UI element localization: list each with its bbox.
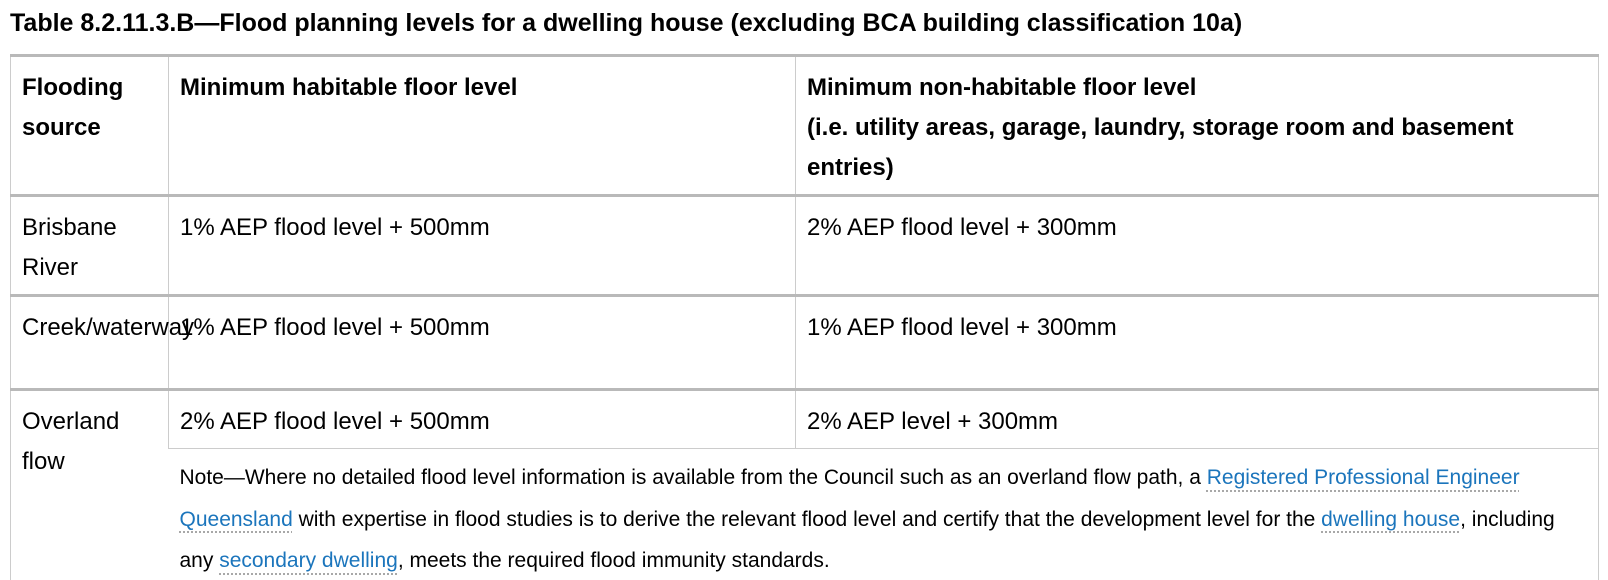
table-row-overland-flow: Overland flow 2% AEP flood level + 500mm… — [11, 390, 1599, 449]
cell-source-overland-flow: Overland flow — [11, 390, 169, 580]
header-flooding-source: Flooding source — [11, 56, 169, 196]
cell-non-habitable-creek-waterway: 1% AEP flood level + 300mm — [796, 296, 1599, 390]
cell-habitable-brisbane-river: 1% AEP flood level + 500mm — [169, 196, 796, 296]
link-registered-professional-engineer-queensland[interactable]: Registered Professional Engineer Queensl… — [180, 466, 1520, 531]
table-header-row: Flooding source Minimum habitable floor … — [11, 56, 1599, 196]
link-secondary-dwelling[interactable]: secondary dwelling — [219, 549, 398, 572]
note-text: Note—Where no detailed flood level infor… — [180, 466, 1555, 572]
document-page: Table 8.2.11.3.B—Flood planning levels f… — [0, 0, 1608, 580]
table-row-creek-waterway: Creek/waterway 1% AEP flood level + 500m… — [11, 296, 1599, 390]
table-row-overland-flow-note: Note—Where no detailed flood level infor… — [11, 449, 1599, 580]
cell-non-habitable-overland-flow: 2% AEP level + 300mm — [796, 390, 1599, 449]
table-row-brisbane-river: Brisbane River 1% AEP flood level + 500m… — [11, 196, 1599, 296]
header-min-non-habitable-floor-level: Minimum non-habitable floor level (i.e. … — [796, 56, 1599, 196]
note-cell: Note—Where no detailed flood level infor… — [169, 449, 1599, 580]
flood-planning-levels-table: Flooding source Minimum habitable floor … — [10, 54, 1599, 580]
cell-source-creek-waterway: Creek/waterway — [11, 296, 169, 390]
header-min-habitable-floor-level: Minimum habitable floor level — [169, 56, 796, 196]
cell-habitable-creek-waterway: 1% AEP flood level + 500mm — [169, 296, 796, 390]
table-title: Table 8.2.11.3.B—Flood planning levels f… — [10, 8, 1598, 38]
cell-habitable-overland-flow: 2% AEP flood level + 500mm — [169, 390, 796, 449]
cell-source-brisbane-river: Brisbane River — [11, 196, 169, 296]
cell-non-habitable-brisbane-river: 2% AEP flood level + 300mm — [796, 196, 1599, 296]
link-dwelling-house[interactable]: dwelling house — [1321, 508, 1460, 531]
